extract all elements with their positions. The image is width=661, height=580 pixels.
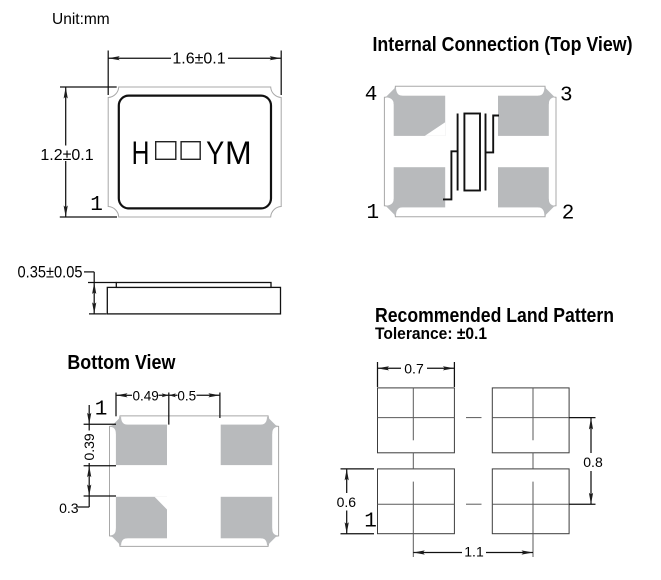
svg-text:0.6: 0.6 [337, 494, 357, 510]
svg-text:Tolerance: ±0.1: Tolerance: ±0.1 [375, 324, 487, 343]
svg-text:M: M [225, 135, 252, 171]
svg-text:4: 4 [365, 84, 378, 107]
svg-text:0.5: 0.5 [177, 389, 196, 404]
svg-text:Unit:mm: Unit:mm [52, 11, 110, 28]
svg-text:1.6±0.1: 1.6±0.1 [172, 51, 225, 68]
svg-text:Bottom View: Bottom View [67, 352, 175, 374]
svg-text:1.1: 1.1 [464, 544, 484, 560]
svg-text:0.3: 0.3 [59, 500, 79, 516]
svg-text:1.2±0.1: 1.2±0.1 [40, 147, 93, 164]
svg-text:Internal Connection (Top View): Internal Connection (Top View) [373, 34, 633, 56]
svg-text:1: 1 [90, 194, 103, 217]
svg-text:0.7: 0.7 [404, 360, 424, 376]
svg-text:1: 1 [95, 399, 108, 422]
svg-text:Y: Y [206, 136, 224, 172]
svg-text:0.8: 0.8 [583, 454, 603, 470]
svg-text:1: 1 [366, 202, 379, 225]
svg-text:2: 2 [562, 203, 575, 226]
svg-text:0.49: 0.49 [132, 389, 158, 404]
svg-text:0.35±0.05: 0.35±0.05 [18, 264, 83, 282]
svg-text:1: 1 [364, 511, 377, 534]
svg-text:3: 3 [560, 85, 573, 108]
svg-text:0.39: 0.39 [81, 433, 97, 460]
svg-text:H: H [132, 136, 150, 172]
